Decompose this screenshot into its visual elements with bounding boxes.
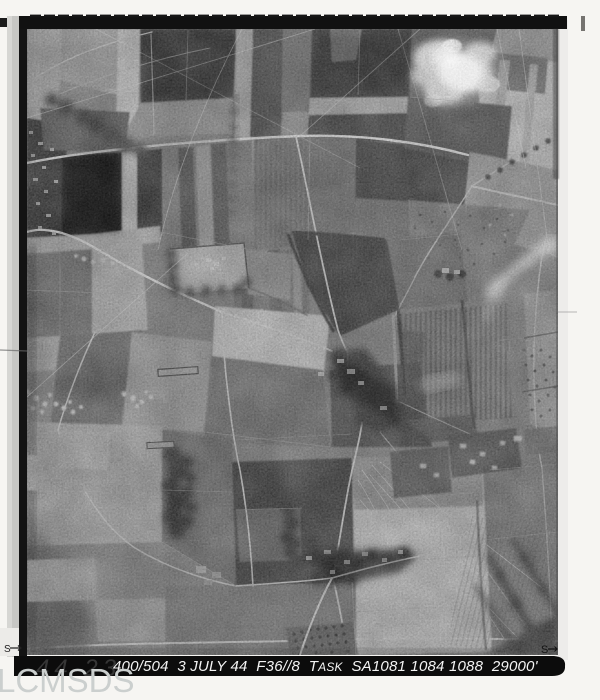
svg-text:S: S — [4, 644, 11, 655]
svg-text:S: S — [541, 644, 548, 656]
svg-text:LCMSDS: LCMSDS — [0, 662, 135, 699]
svg-text:400/504 3 JULY 44 F36//8 TA: 400/504 3 JULY 44 F36//8 TASK SA1081 108… — [113, 658, 539, 675]
